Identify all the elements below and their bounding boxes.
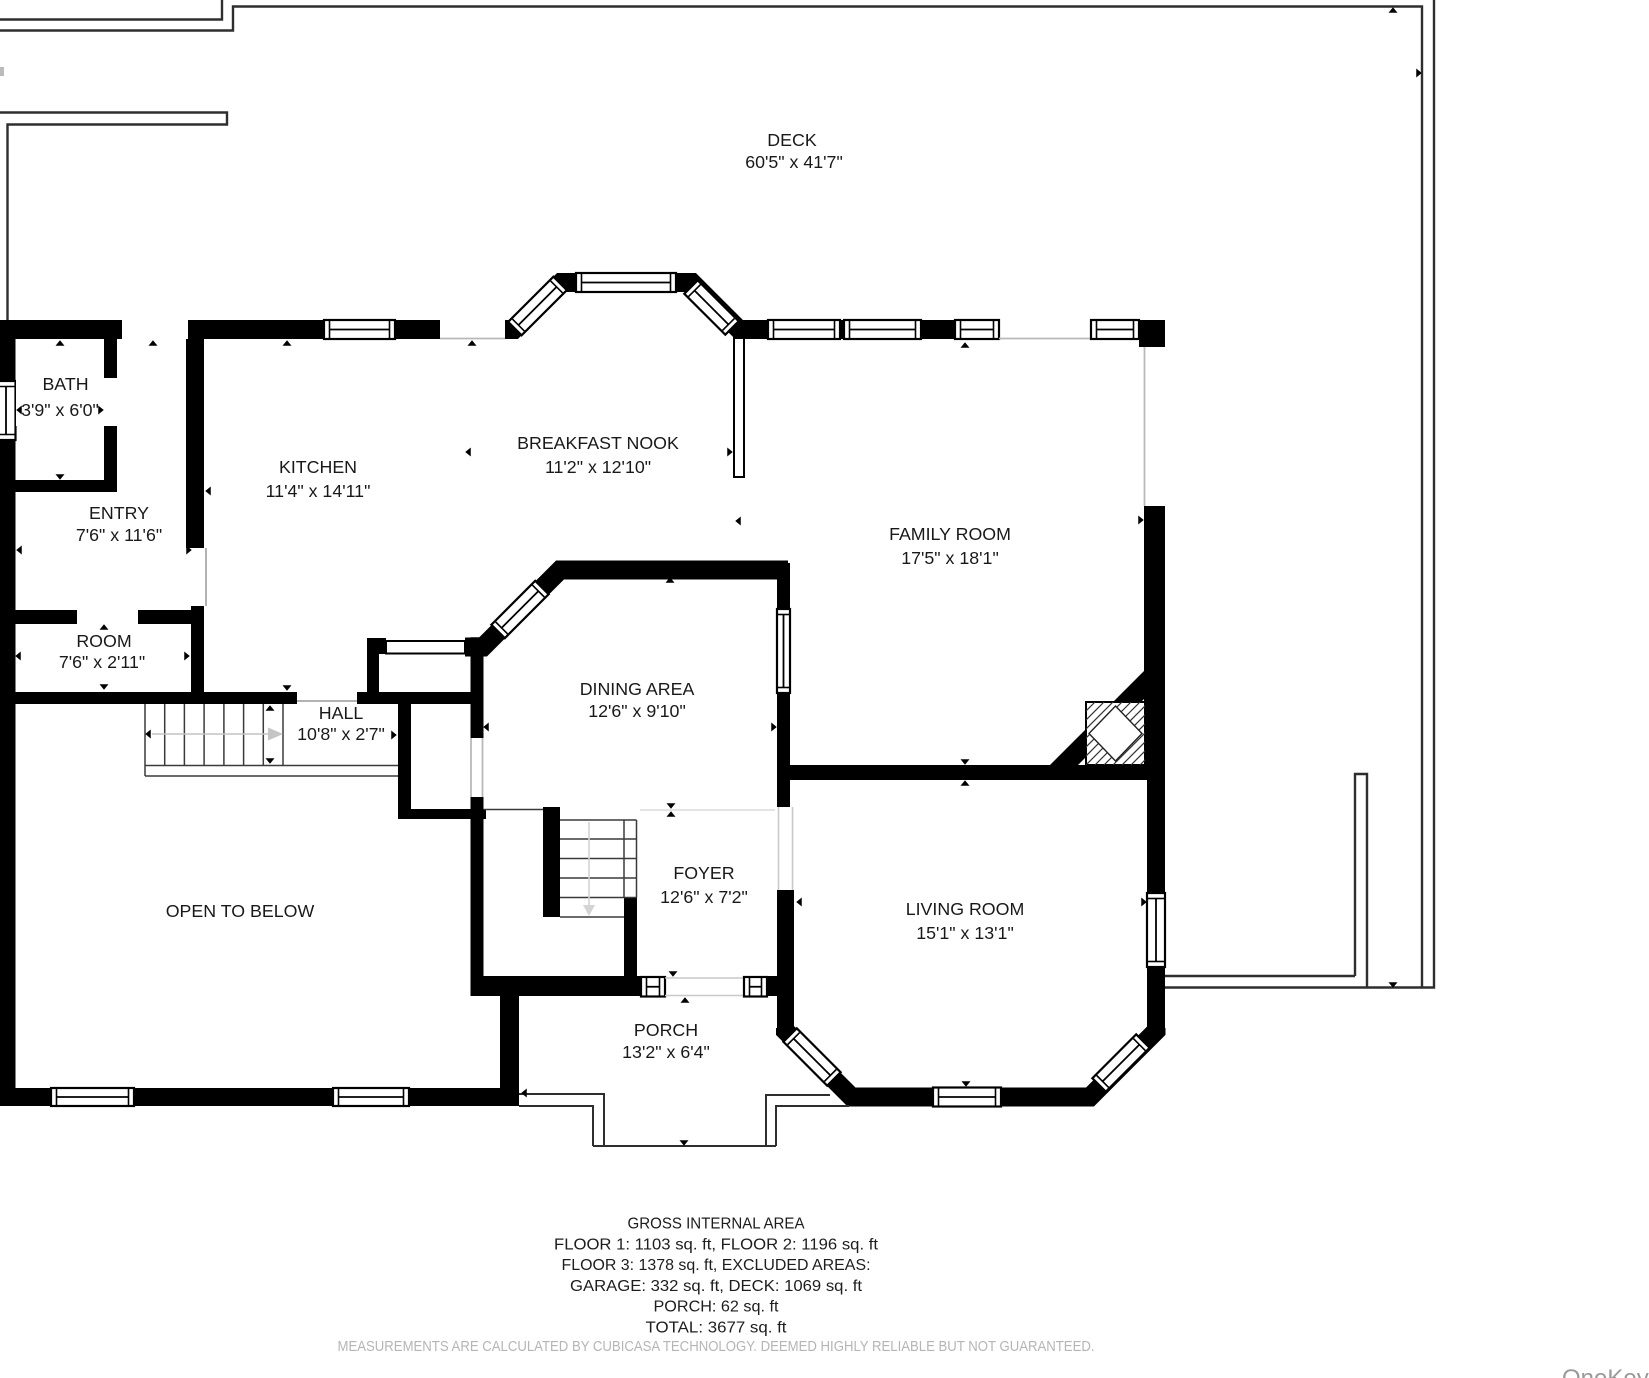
svg-text:17'5" x 18'1": 17'5" x 18'1" <box>901 548 999 568</box>
svg-text:OneKey MLS: OneKey MLS <box>1562 1365 1649 1378</box>
svg-text:11'4" x 14'11": 11'4" x 14'11" <box>266 481 371 501</box>
svg-text:KITCHEN: KITCHEN <box>279 457 357 477</box>
svg-text:12'6" x 7'2": 12'6" x 7'2" <box>660 887 748 907</box>
svg-text:PORCH: 62 sq. ft: PORCH: 62 sq. ft <box>654 1299 780 1316</box>
svg-text:BREAKFAST NOOK: BREAKFAST NOOK <box>517 433 679 453</box>
svg-text:DECK: DECK <box>767 130 817 150</box>
svg-text:10'8" x 2'7": 10'8" x 2'7" <box>297 724 385 744</box>
svg-text:BATH: BATH <box>42 374 88 394</box>
svg-text:13'2" x 6'4": 13'2" x 6'4" <box>622 1042 710 1062</box>
svg-text:12'6" x 9'10": 12'6" x 9'10" <box>588 701 686 721</box>
svg-text:DINING AREA: DINING AREA <box>580 679 695 699</box>
svg-text:FLOOR 1: 1103 sq. ft, FLOOR 2:: FLOOR 1: 1103 sq. ft, FLOOR 2: 1196 sq. … <box>554 1237 879 1254</box>
svg-text:7'6" x 2'11": 7'6" x 2'11" <box>59 652 145 672</box>
svg-text:11'2" x 12'10": 11'2" x 12'10" <box>545 457 651 477</box>
svg-text:LIVING ROOM: LIVING ROOM <box>906 899 1025 919</box>
svg-text:FOYER: FOYER <box>673 863 734 883</box>
svg-text:MEASUREMENTS ARE CALCULATED BY: MEASUREMENTS ARE CALCULATED BY CUBICASA … <box>338 1338 1095 1355</box>
svg-text:PORCH: PORCH <box>634 1020 698 1040</box>
svg-text:15'1" x 13'1": 15'1" x 13'1" <box>916 923 1014 943</box>
svg-text:ROOM: ROOM <box>76 631 131 651</box>
svg-text:TOTAL: 3677 sq. ft: TOTAL: 3677 sq. ft <box>646 1320 788 1337</box>
svg-text:OPEN TO BELOW: OPEN TO BELOW <box>166 901 315 921</box>
svg-text:ENTRY: ENTRY <box>89 503 149 523</box>
svg-text:7'6" x 11'6": 7'6" x 11'6" <box>76 525 162 545</box>
svg-text:60'5" x 41'7": 60'5" x 41'7" <box>745 152 843 172</box>
svg-text:GARAGE: 332 sq. ft, DECK: 1069: GARAGE: 332 sq. ft, DECK: 1069 sq. ft <box>570 1278 863 1295</box>
svg-text:FAMILY ROOM: FAMILY ROOM <box>889 524 1011 544</box>
svg-text:FLOOR 3: 1378 sq. ft, EXCLUDED: FLOOR 3: 1378 sq. ft, EXCLUDED AREAS: <box>562 1257 871 1274</box>
svg-text:HALL: HALL <box>319 703 364 723</box>
svg-text:GROSS INTERNAL AREA: GROSS INTERNAL AREA <box>628 1216 806 1233</box>
svg-text:3'9" x 6'0": 3'9" x 6'0" <box>21 400 99 420</box>
